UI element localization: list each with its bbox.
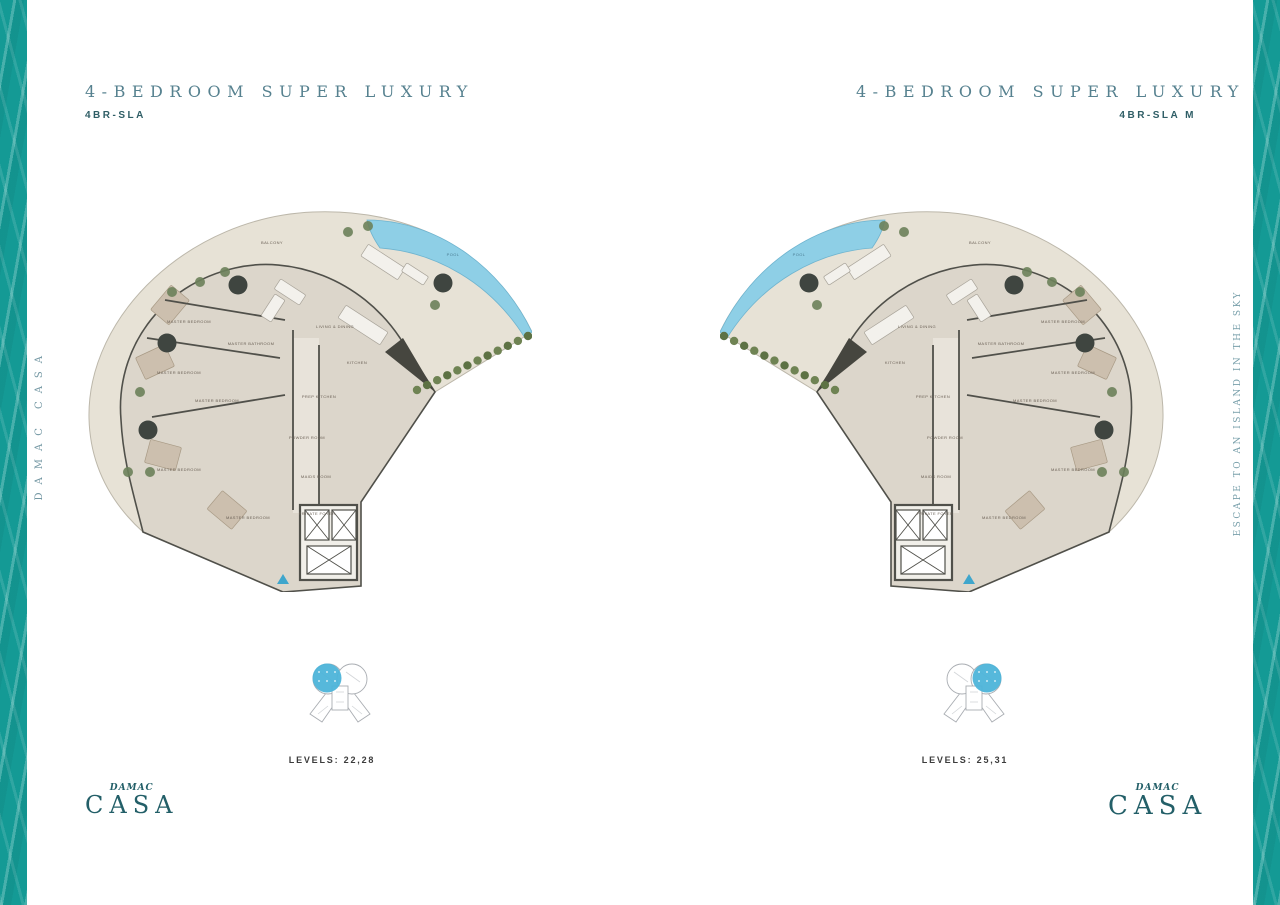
left-plan-title: 4-BEDROOM SUPER LUXURY — [85, 82, 425, 101]
right-plan-header: 4-BEDROOM SUPER LUXURY 4BR-SLA M — [856, 82, 1196, 121]
room-label: MASTER BATHROOM — [228, 341, 275, 346]
room-label: PREP KITCHEN — [302, 394, 336, 399]
side-text-tagline: ESCAPE TO AN ISLAND IN THE SKY — [1233, 290, 1243, 536]
room-label: PRIVATE FOYER — [299, 511, 336, 516]
room-label: MASTER BATHROOM — [978, 341, 1025, 346]
room-label: MASTER BEDROOM — [1013, 398, 1057, 403]
room-label: POWDER ROOM — [927, 435, 963, 440]
keyplan-icon-right — [928, 658, 1020, 730]
room-label: POWDER ROOM — [289, 435, 325, 440]
damac-casa-logo-right: DAMAC CASA — [1108, 783, 1207, 820]
room-label: MASTER BEDROOM — [195, 398, 239, 403]
room-label: BALCONY — [969, 240, 991, 245]
room-label: KITCHEN — [885, 360, 905, 365]
right-plan-title: 4-BEDROOM SUPER LUXURY — [856, 82, 1196, 101]
casa-wordmark: CASA — [85, 793, 178, 818]
room-label: MASTER BEDROOM — [1051, 370, 1095, 375]
room-label: POOL — [447, 252, 460, 257]
side-text-brand: DAMAC CASA — [34, 348, 45, 500]
water-border-left — [0, 0, 27, 905]
room-label: MASTER BEDROOM — [157, 467, 201, 472]
room-label: MASTER BEDROOM — [1051, 467, 1095, 472]
room-label: MASTER BEDROOM — [982, 515, 1026, 520]
room-label: LIVING & DINING — [898, 324, 936, 329]
room-label: MASTER BEDROOM — [167, 319, 211, 324]
room-label: BALCONY — [261, 240, 283, 245]
floorplan-left: BALCONYPOOLLIVING & DININGKITCHENPREP KI… — [85, 210, 532, 592]
keyplan-icon-left — [294, 658, 386, 730]
room-label: PREP KITCHEN — [916, 394, 950, 399]
room-label: MASTER BEDROOM — [226, 515, 270, 520]
right-plan-code: 4BR-SLA M — [856, 110, 1196, 121]
floorplan-right: BALCONYPOOLLIVING & DININGKITCHENPREP KI… — [720, 210, 1167, 592]
left-plan-levels: LEVELS: 22,28 — [262, 755, 402, 765]
casa-wordmark: CASA — [1108, 793, 1207, 820]
room-label: POOL — [793, 252, 806, 257]
damac-casa-logo-left: DAMAC CASA — [85, 783, 178, 818]
left-plan-header: 4-BEDROOM SUPER LUXURY 4BR-SLA — [85, 82, 425, 121]
water-border-right — [1253, 0, 1280, 905]
room-label: MASTER BEDROOM — [157, 370, 201, 375]
left-plan-code: 4BR-SLA — [85, 110, 425, 121]
room-label: PRIVATE FOYER — [917, 511, 954, 516]
room-label: LIVING & DINING — [316, 324, 354, 329]
room-label: MASTER BEDROOM — [1041, 319, 1085, 324]
right-plan-levels: LEVELS: 25,31 — [895, 755, 1035, 765]
room-label: MAIDS ROOM — [301, 474, 331, 479]
room-label: MAIDS ROOM — [921, 474, 951, 479]
room-label: KITCHEN — [347, 360, 367, 365]
